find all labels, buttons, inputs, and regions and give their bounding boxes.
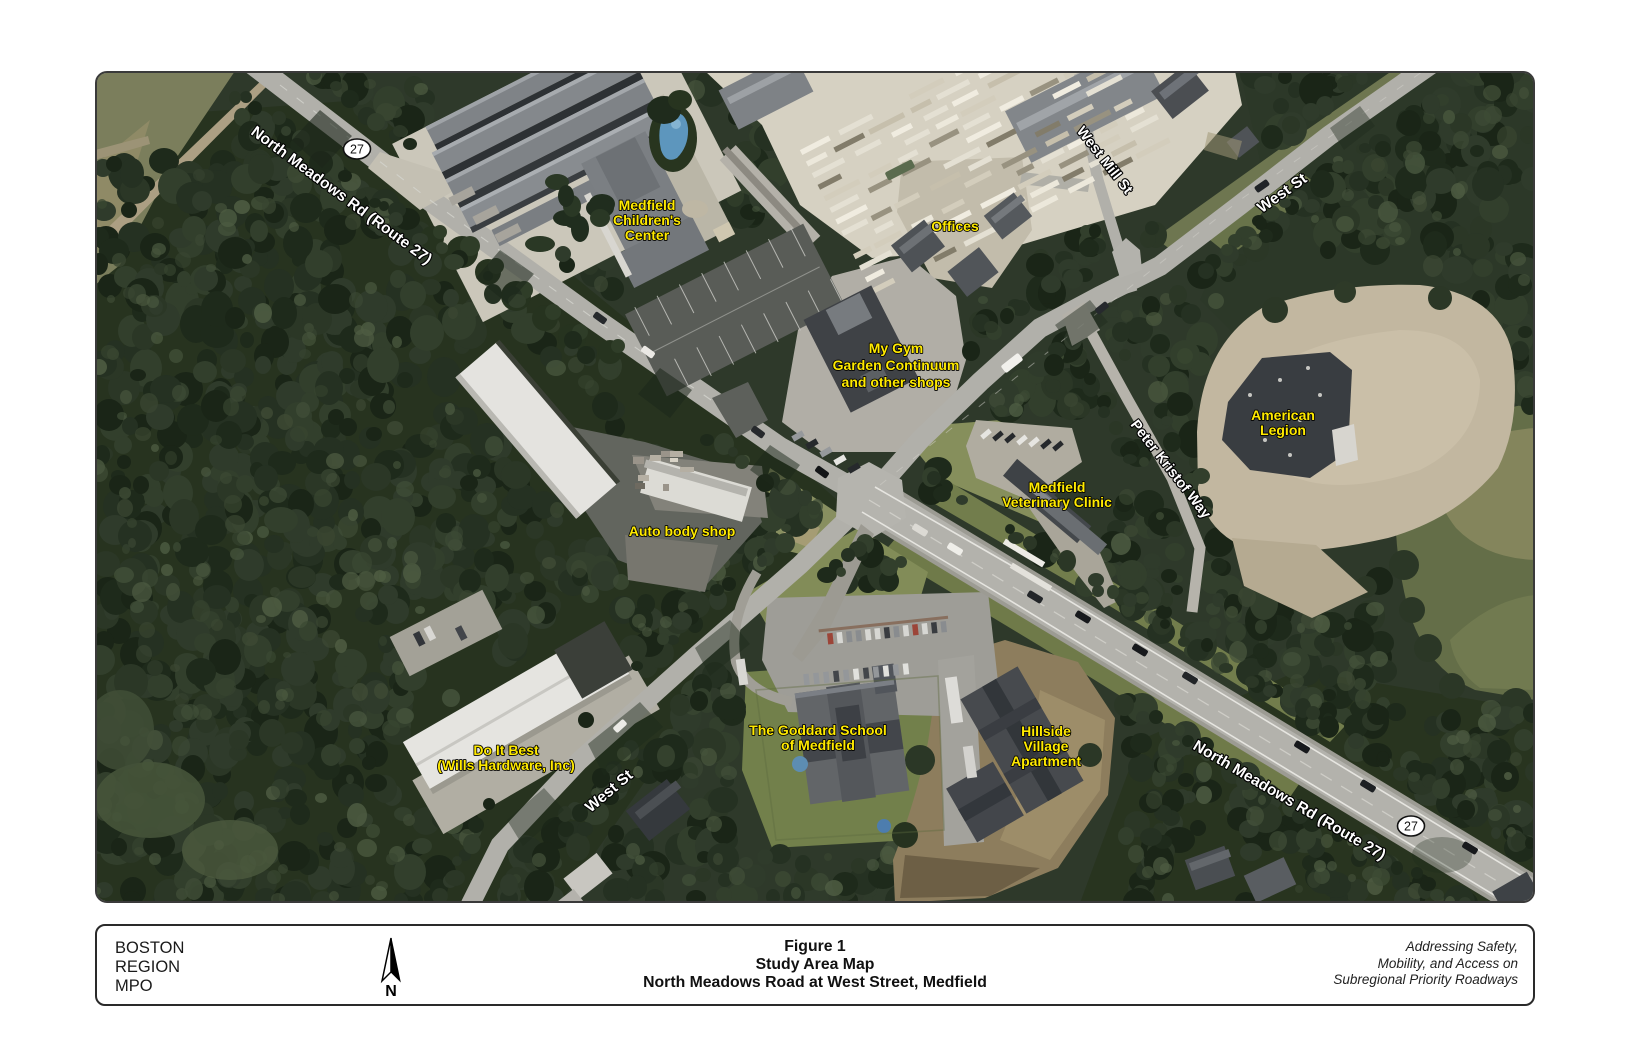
svg-text:Auto body shop: Auto body shop <box>629 523 736 539</box>
svg-text:27: 27 <box>1404 820 1418 834</box>
svg-text:AmericanLegion: AmericanLegion <box>1251 407 1315 438</box>
svg-text:27: 27 <box>350 143 364 157</box>
svg-text:Offices: Offices <box>931 218 979 234</box>
